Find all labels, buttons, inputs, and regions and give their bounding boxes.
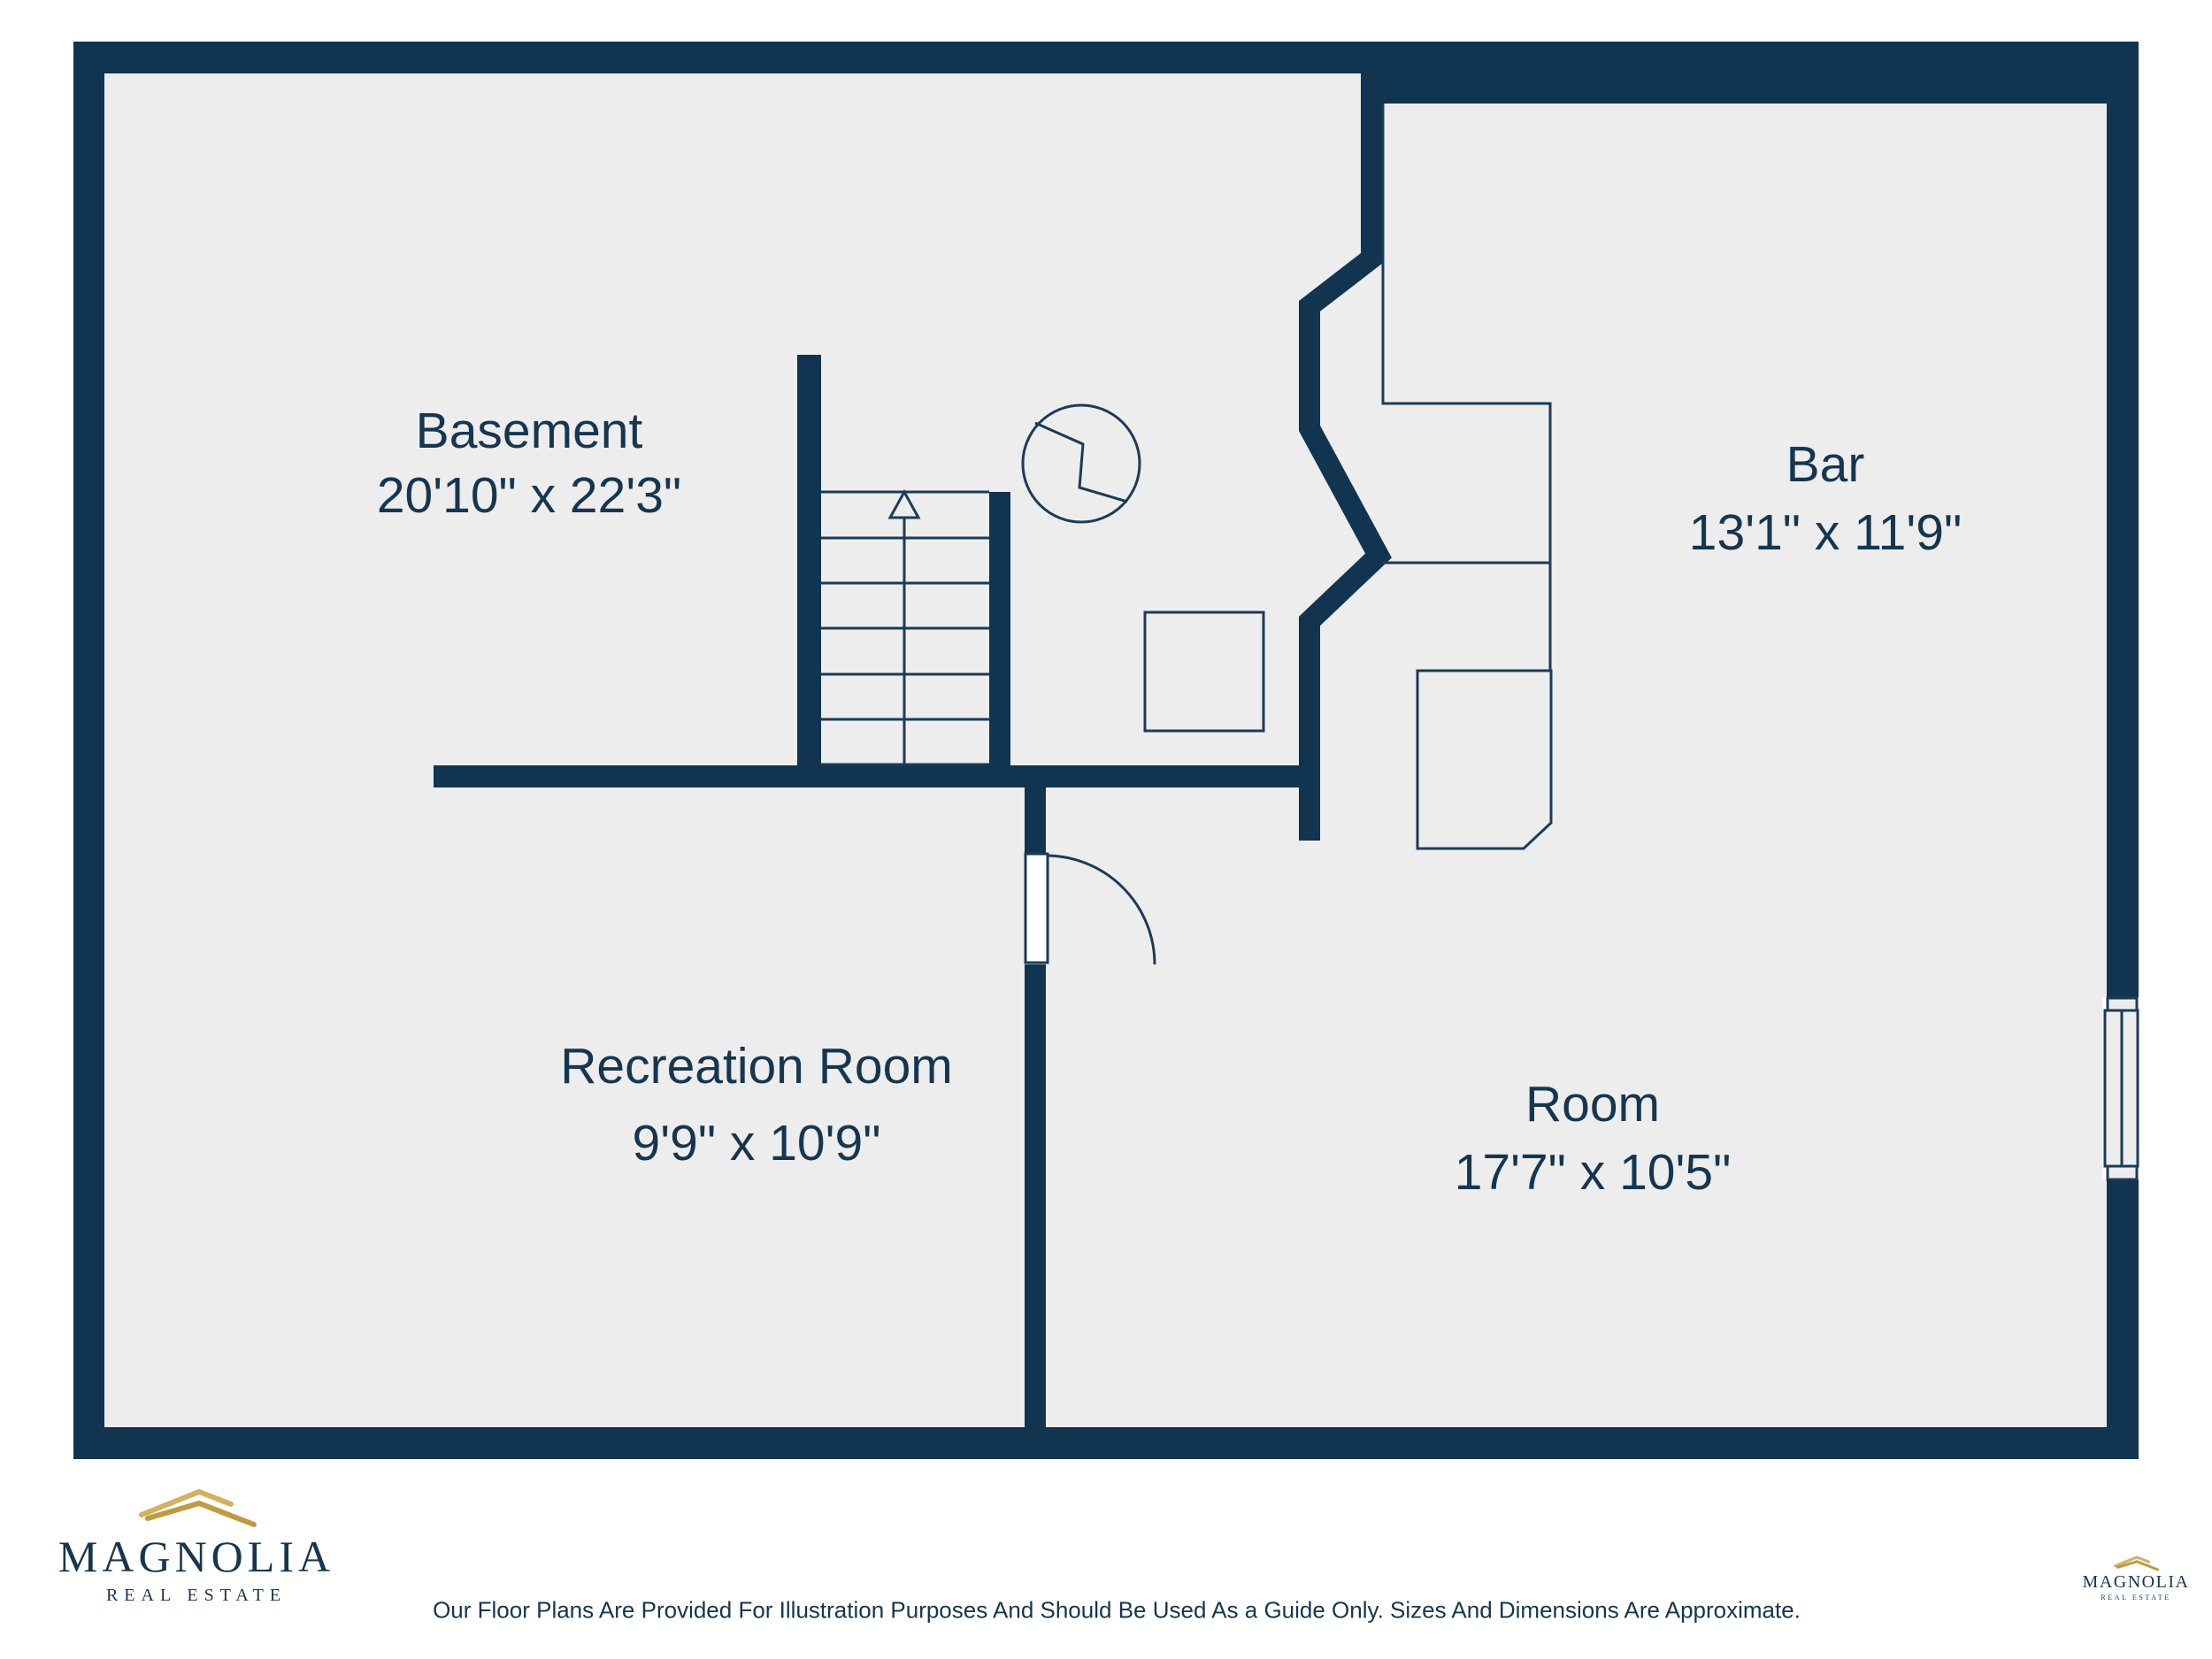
floor-plan-drawing <box>0 0 2212 1659</box>
stair-left-wall <box>797 355 821 787</box>
stair-right-wall <box>989 492 1010 787</box>
basement-south-wall <box>434 765 1301 787</box>
magnolia-subtitle: REAL ESTATE <box>55 1586 338 1606</box>
room-label-recreation-room: Recreation Room <box>560 1037 953 1095</box>
disclaimer-text: Our Floor Plans Are Provided For Illustr… <box>433 1597 1801 1624</box>
divider-wall <box>1025 964 1046 1459</box>
bar-north-wall <box>1381 73 2107 104</box>
magnolia-logo: MAGNOLIA REAL ESTATE <box>55 1483 338 1606</box>
magnolia-wordmark-small: MAGNOLIA <box>2076 1572 2196 1593</box>
magnolia-subtitle-small: REAL ESTATE <box>2076 1594 2196 1601</box>
room-label-bar: Bar <box>1786 435 1865 494</box>
magnolia-logo-small: MAGNOLIA REAL ESTATE <box>2076 1554 2196 1601</box>
room-label-basement: Basement <box>416 402 643 460</box>
floor-plan-page: Basement 20'10" x 22'3" Bar 13'1" x 11'9… <box>0 0 2212 1659</box>
magnolia-roof-icon <box>121 1483 272 1529</box>
room-label-room: Room <box>1525 1075 1660 1133</box>
magnolia-roof-icon-small <box>2108 1554 2164 1571</box>
room-dims-recreation-room: 9'9" x 10'9" <box>633 1114 881 1172</box>
divider-wall-stub <box>1025 787 1046 854</box>
window <box>2102 997 2141 1179</box>
floor-area <box>104 73 2107 1427</box>
room-dims-bar: 13'1" x 11'9" <box>1689 503 1962 562</box>
room-dims-room: 17'7" x 10'5" <box>1455 1143 1732 1202</box>
room-dims-basement: 20'10" x 22'3" <box>377 466 681 525</box>
magnolia-wordmark: MAGNOLIA <box>55 1531 338 1582</box>
